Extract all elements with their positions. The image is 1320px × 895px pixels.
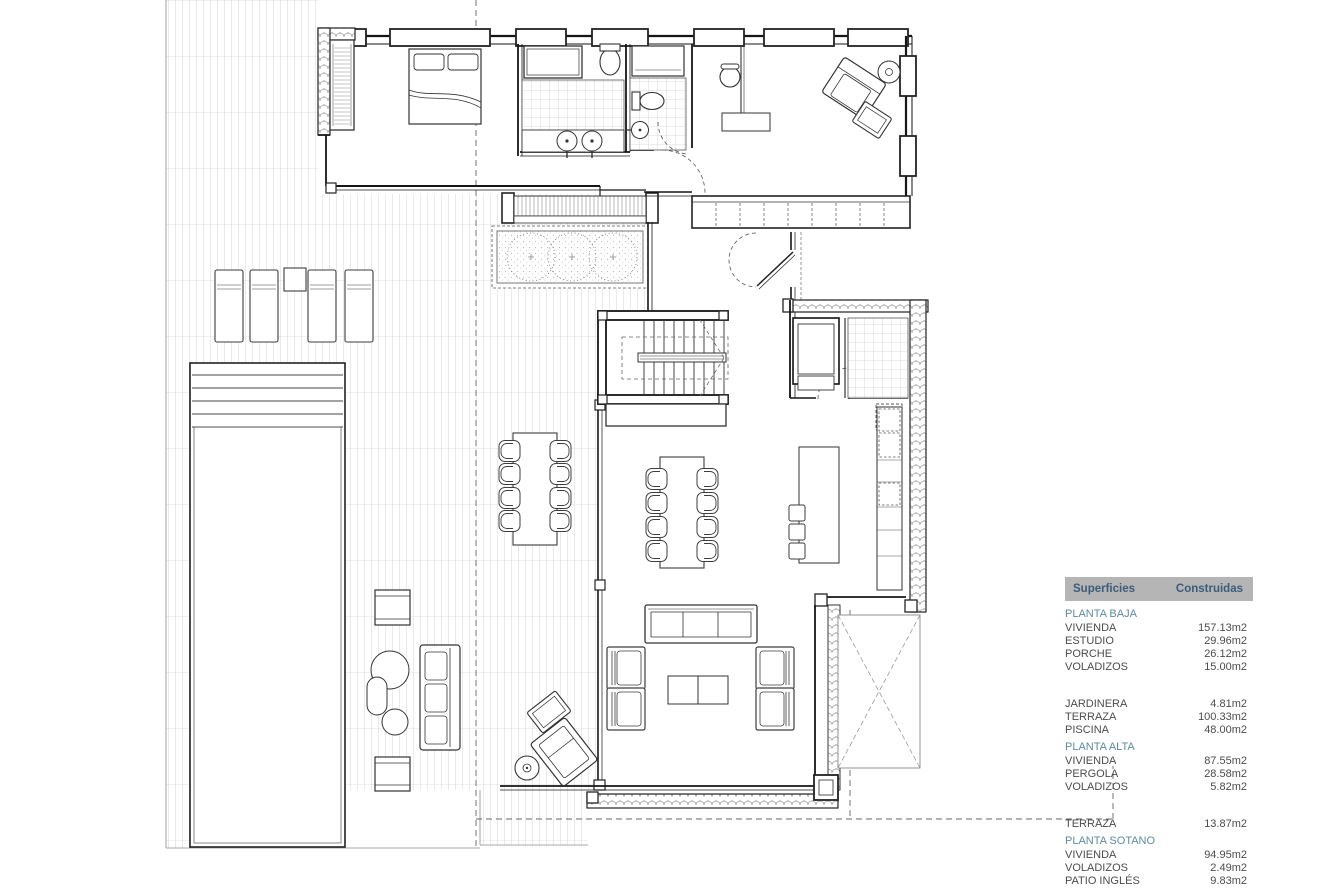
table-row: VIVIENDA87.55m2 [1065,755,1253,768]
row-label: VIVIENDA [1065,849,1116,862]
armchair [756,688,794,730]
round-table [878,61,900,83]
table-row: PATIO INGLÉS9.83m2 [1065,875,1253,888]
kitchen-counter [877,407,902,590]
table-row: VIVIENDA157.13m2 [1065,622,1253,635]
sofa [645,605,757,643]
outdoor-pouf-round [382,709,408,735]
table-section: TERRAZA13.87m2 [1065,818,1253,831]
table-row: VOLADIZOS2.49m2 [1065,862,1253,875]
coffee-table [668,676,728,704]
row-value: 13.87m2 [1204,818,1247,831]
table-row: VOLADIZOS15.00m2 [1065,661,1253,674]
staircase [598,311,728,426]
row-label: JARDINERA [1065,698,1127,711]
row-value: 28.58m2 [1204,768,1247,781]
row-label: TERRAZA [1065,711,1116,724]
row-label: PORCHE [1065,648,1112,661]
kitchen [789,407,902,590]
table-section-title: PLANTA ALTA [1065,740,1253,755]
outdoor-chair [375,590,410,625]
floor-plan-page: Superficies Construidas PLANTA BAJAVIVIE… [0,0,1320,895]
table-section: PLANTA ALTAVIVIENDA87.55m2PERGOLA28.58m2… [1065,740,1253,794]
surfaces-table-sections: PLANTA BAJAVIVIENDA157.13m2ESTUDIO29.96m… [1065,607,1253,888]
surfaces-table: Superficies Construidas PLANTA BAJAVIVIE… [1065,577,1253,895]
armchair [756,647,794,689]
row-label: PATIO INGLÉS [1065,875,1140,888]
row-value: 48.00m2 [1204,724,1247,737]
round-side-table [515,756,539,780]
row-value: 2.49m2 [1210,862,1247,875]
row-label: ESTUDIO [1065,635,1114,648]
outdoor-pouf [367,677,387,715]
table-row: JARDINERA4.81m2 [1065,698,1253,711]
bar-stool [789,505,805,521]
row-label: PERGOLA [1065,768,1118,781]
table-row: PORCHE26.12m2 [1065,648,1253,661]
planter [492,193,658,288]
dining-table-indoor [646,457,718,568]
row-label: VOLADIZOS [1065,661,1128,674]
row-value: 15.00m2 [1204,661,1247,674]
bar-stool [789,543,805,559]
dining-table-terrace [499,433,571,545]
row-value: 4.81m2 [1210,698,1247,711]
table-row: PERGOLA28.58m2 [1065,768,1253,781]
row-value: 94.95m2 [1204,849,1247,862]
sink-icon [582,131,602,158]
row-value: 29.96m2 [1204,635,1247,648]
table-section: PLANTA BAJAVIVIENDA157.13m2ESTUDIO29.96m… [1065,607,1253,674]
studio [720,46,900,139]
table-row: PISCINA48.00m2 [1065,724,1253,737]
row-label: TERRAZA [1065,818,1116,831]
row-value: 26.12m2 [1204,648,1247,661]
side-table [284,268,306,291]
armchair [607,647,645,689]
pergola-cross [838,615,920,768]
header-col-construidas: Construidas [1176,583,1243,595]
row-label: PISCINA [1065,724,1109,737]
armchair [607,688,645,730]
bar-stool [789,524,805,540]
bathroom-2 [627,46,686,150]
table-section: JARDINERA4.81m2TERRAZA100.33m2PISCINA48.… [1065,698,1253,737]
surfaces-table-header: Superficies Construidas [1065,577,1253,601]
row-label: VOLADIZOS [1065,781,1128,794]
row-value: 9.83m2 [1210,875,1247,888]
table-section: PLANTA SOTANOVIVIENDA94.95m2VOLADIZOS2.4… [1065,834,1253,888]
desk-chair [720,64,740,87]
row-value: 100.33m2 [1198,711,1247,724]
row-label: VIVIENDA [1065,755,1116,768]
row-value: 157.13m2 [1198,622,1247,635]
outdoor-sofa [420,645,460,750]
table-row: TERRAZA13.87m2 [1065,818,1253,831]
row-value: 5.82m2 [1210,781,1247,794]
table-row: TERRAZA100.33m2 [1065,711,1253,724]
table-section-title: PLANTA BAJA [1065,607,1253,622]
table-section-title: PLANTA SOTANO [1065,834,1253,849]
table-row: ESTUDIO29.96m2 [1065,635,1253,648]
header-col-superficies: Superficies [1073,583,1135,595]
bedroom [409,49,481,124]
toilet-icon [632,92,664,110]
table-row: VIVIENDA94.95m2 [1065,849,1253,862]
wall-cabinet [692,196,910,228]
row-value: 87.55m2 [1204,755,1247,768]
walk-in-closet [330,40,354,130]
sink-icon [557,131,577,158]
bathroom-master [522,44,624,158]
pool [190,363,345,847]
row-label: VOLADIZOS [1065,862,1128,875]
row-label: VIVIENDA [1065,622,1116,635]
bed [409,49,481,124]
desk [722,46,770,131]
outdoor-chair [375,757,410,791]
table-row: VOLADIZOS5.82m2 [1065,781,1253,794]
toilet-icon [600,44,620,75]
